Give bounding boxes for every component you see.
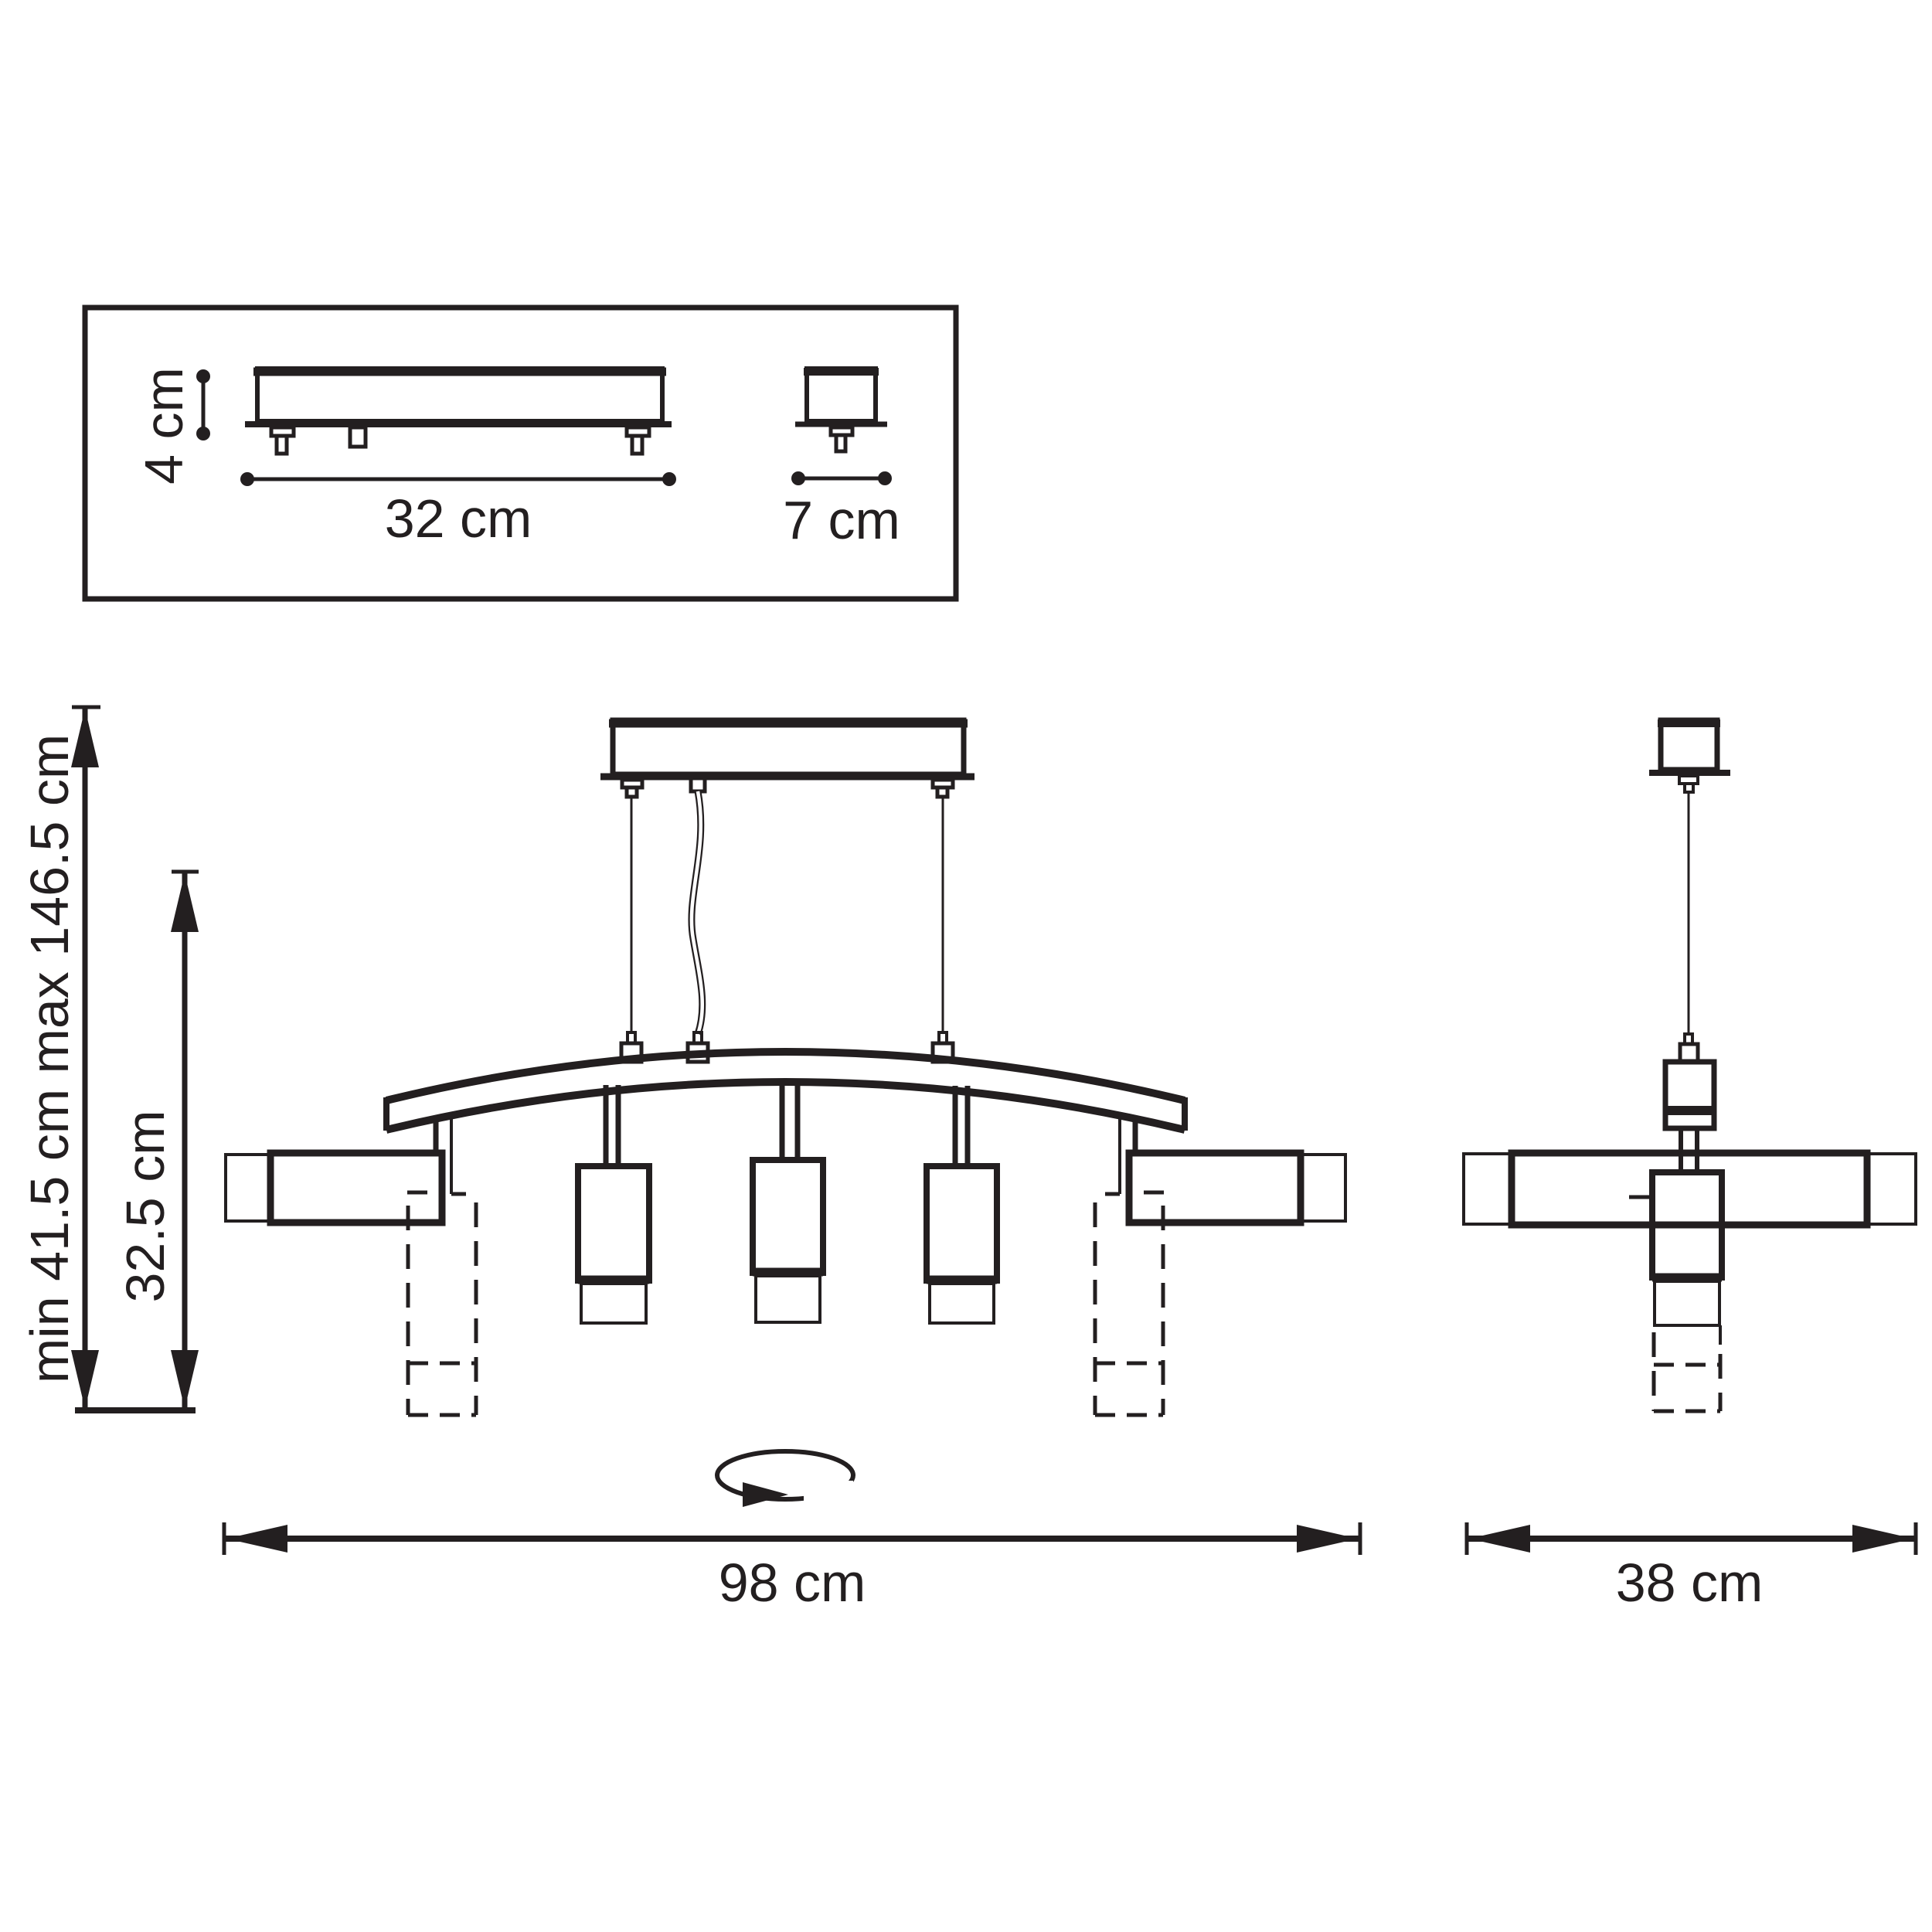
shade-glass <box>930 1284 994 1323</box>
inset-mounting-detail: 4 cm 32 cm 7 cm <box>85 308 956 599</box>
shade-glass <box>581 1284 646 1323</box>
cable-hanger-left <box>622 780 642 797</box>
arm-bottom-edge <box>386 1082 1185 1130</box>
arrowhead-down <box>171 1350 199 1409</box>
cable-hanger <box>1679 776 1698 792</box>
suspension-cables <box>631 791 943 1034</box>
shade-glass-cap-left <box>1464 1154 1512 1224</box>
shade-body <box>753 1160 823 1273</box>
arrowhead-right <box>1852 1525 1913 1553</box>
shade-glass-cap <box>1301 1155 1345 1221</box>
ceiling-canopy <box>600 720 975 797</box>
dimension-dot <box>878 471 892 485</box>
shade-glass <box>756 1276 820 1322</box>
shade-body <box>1129 1153 1301 1223</box>
canopy-height-label: 4 cm <box>134 367 194 485</box>
curved-arm <box>386 1052 1185 1131</box>
shade-body <box>927 1166 997 1281</box>
shade-glass <box>1655 1281 1719 1325</box>
ceiling-canopy <box>1649 720 1730 792</box>
dimension-dot <box>662 472 676 486</box>
mounting-screw <box>831 427 852 451</box>
canopy-body <box>613 720 964 774</box>
fixture-drop-label: 32.5 cm <box>115 1111 175 1303</box>
inset-canopy-side-view <box>795 369 887 451</box>
mounting-screw-right <box>627 427 649 454</box>
cable-hanger-right <box>933 780 953 797</box>
rotated-position-outline <box>1095 1202 1163 1415</box>
horizontal-shade-tube <box>1464 1153 1916 1225</box>
rotation-arrow-icon <box>717 1451 853 1507</box>
shade-vertical-2 <box>753 1079 823 1322</box>
vertical-dimensions: min 41.5 cm max 146.5 cm 32.5 cm <box>19 707 199 1410</box>
side-width-label: 38 cm <box>1616 1553 1764 1613</box>
canopy-body <box>807 369 876 421</box>
technical-drawing-canvas: 4 cm 32 cm 7 cm <box>0 0 1932 1932</box>
dimension-canopy-width: 7 cm <box>783 471 900 550</box>
arrowhead-left <box>226 1525 287 1553</box>
tube-body <box>1512 1153 1867 1225</box>
arrowhead-left <box>1469 1525 1530 1553</box>
drawing-page: 4 cm 32 cm 7 cm <box>0 0 1932 1932</box>
suspension-height-label: min 41.5 cm max 146.5 cm <box>19 734 80 1383</box>
shade-vertical-1 <box>578 1085 649 1323</box>
dimension-front-width: 98 cm <box>224 1522 1360 1613</box>
arrowhead-right <box>1297 1525 1358 1553</box>
canopy-body <box>1661 720 1717 770</box>
rotated-position-outline <box>408 1202 476 1415</box>
dimension-suspension-height: min 41.5 cm max 146.5 cm <box>19 707 100 1409</box>
front-vertical-shade <box>1652 1172 1722 1411</box>
shade-body <box>270 1153 442 1223</box>
rotated-position-outline <box>1654 1332 1720 1411</box>
shade-vertical-3 <box>927 1086 997 1323</box>
dimension-canopy-height: 4 cm <box>134 367 210 485</box>
mounting-screw-left <box>271 427 294 454</box>
power-cord-core <box>692 791 702 1034</box>
dimension-fixture-drop: 32.5 cm <box>115 872 199 1409</box>
arm-top-edge <box>386 1052 1185 1100</box>
dimension-side-width: 38 cm <box>1467 1522 1916 1613</box>
shade-glass-cap-right <box>1867 1154 1916 1224</box>
canopy-width-label: 7 cm <box>783 490 900 550</box>
inset-border <box>85 308 956 599</box>
cord-connector <box>691 778 705 791</box>
arrowhead-up <box>171 873 199 932</box>
dimension-dot <box>196 369 210 383</box>
front-width-label: 98 cm <box>719 1553 866 1613</box>
dimension-dot <box>791 471 805 485</box>
canopy-body <box>257 369 662 421</box>
shade-glass-cap <box>226 1155 270 1221</box>
dimension-dot <box>196 427 210 440</box>
canopy-length-label: 32 cm <box>385 488 532 549</box>
dimension-dot <box>240 472 254 486</box>
inset-canopy-front-view <box>245 369 672 454</box>
dimension-canopy-length: 32 cm <box>240 472 676 549</box>
mounting-screw-middle <box>350 427 366 447</box>
cable-gripper <box>1680 1034 1698 1062</box>
shade-body <box>578 1166 649 1281</box>
shade-left-horizontal <box>226 1114 476 1415</box>
front-view: 98 cm <box>224 720 1360 1613</box>
shade-right-horizontal <box>1095 1114 1345 1415</box>
side-view: 38 cm <box>1464 720 1916 1613</box>
